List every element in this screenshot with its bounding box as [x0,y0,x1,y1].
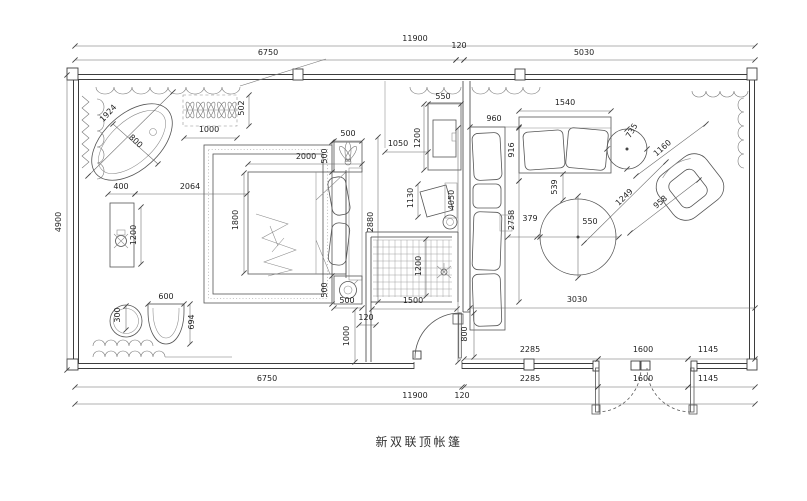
dimension-label: 1200 [129,225,138,245]
dimension-tick [663,159,668,164]
dimension-label: 800 [460,326,469,341]
dimension-label: 4900 [54,212,63,232]
dimension-label: 1540 [555,98,575,107]
bed [248,168,362,280]
sofa-left [470,127,512,330]
dimension-label: 550 [582,217,597,226]
round-table [534,193,621,280]
dimension-label: 2880 [366,212,375,232]
partition-walls [366,81,470,362]
dimension-label: 1500 [403,296,423,305]
dimension-label: 6750 [258,48,278,57]
shower-room [373,240,452,297]
dimension-label: 2000 [296,152,316,161]
dimension-layer: 1190067501205030490067502285160011452285… [54,34,758,407]
dimension-label: 2285 [520,345,540,354]
dimension-label: 379 [522,214,537,223]
dimension-line [88,92,173,176]
dimension-tick [633,173,638,178]
dimension-label: 694 [187,314,196,329]
dimension-label: 6750 [257,374,277,383]
dimension-label: 2285 [520,374,540,383]
dimension-label: 1145 [698,345,718,354]
dimension-label: 500 [320,148,329,163]
dimension-label: 1000 [342,326,351,346]
curtain-decorations [82,59,748,357]
dimension-label: 2064 [180,182,200,191]
tv-cabinet [428,103,461,170]
dimension-label: 500 [320,282,329,297]
dimension-label: 2758 [507,210,516,230]
dimension-tick [703,121,708,126]
dimension-label: 600 [158,292,173,301]
dimension-label: 4050 [447,190,456,210]
rug [204,145,332,303]
dimension-label: 500 [339,296,354,305]
sofa-top [519,117,611,173]
outer-walls [74,75,755,369]
dimension-label: 1130 [406,188,415,208]
dimension-label: 958 [652,194,669,211]
dimension-label: 400 [113,182,128,191]
dimension-label: 5030 [574,48,594,57]
nightstand-north [334,142,362,172]
dimension-tick [581,240,586,245]
dimension-tick [627,230,632,235]
floorplan-page: 1190067501205030490067502285160011452285… [0,0,807,501]
dimension-label: 120 [358,313,373,322]
toilet [148,304,184,344]
dimension-label: 120 [451,41,466,50]
dimension-label: 539 [550,179,559,194]
dimension-label: 11900 [402,391,427,400]
dimension-label: 1160 [652,138,673,158]
dimension-label: 502 [237,100,246,115]
dimension-label: 1200 [414,256,423,276]
floorplan-canvas: 1190067501205030490067502285160011452285… [0,0,807,501]
drawing-title: 新双联顶帐篷 [375,434,462,449]
dimension-tick [85,173,90,178]
dimension-label: 120 [454,391,469,400]
dimension-label: 1600 [633,374,653,383]
dimension-label: 500 [340,129,355,138]
dimension-label: 800 [127,133,144,150]
dimension-label: 1145 [698,374,718,383]
dimension-label: 960 [486,114,501,123]
dimension-label: 11900 [402,34,427,43]
dimension-label: 300 [113,307,122,322]
dimension-label: 916 [507,142,516,157]
dimension-label: 1050 [388,139,408,148]
dimension-label: 1600 [633,345,653,354]
dimension-label: 735 [624,122,639,140]
dimension-label: 1800 [231,210,240,230]
dimension-label: 1200 [413,128,422,148]
entry-door-opening [414,361,462,372]
dimension-line [630,180,699,233]
dimension-label: 1000 [199,125,219,134]
dimension-label: 550 [435,92,450,101]
dimension-label: 1924 [98,103,118,124]
dimension-label: 3030 [567,295,587,304]
dimension-label: 1249 [614,187,635,208]
vanity-shelf [183,95,238,126]
entry-door [413,313,463,359]
